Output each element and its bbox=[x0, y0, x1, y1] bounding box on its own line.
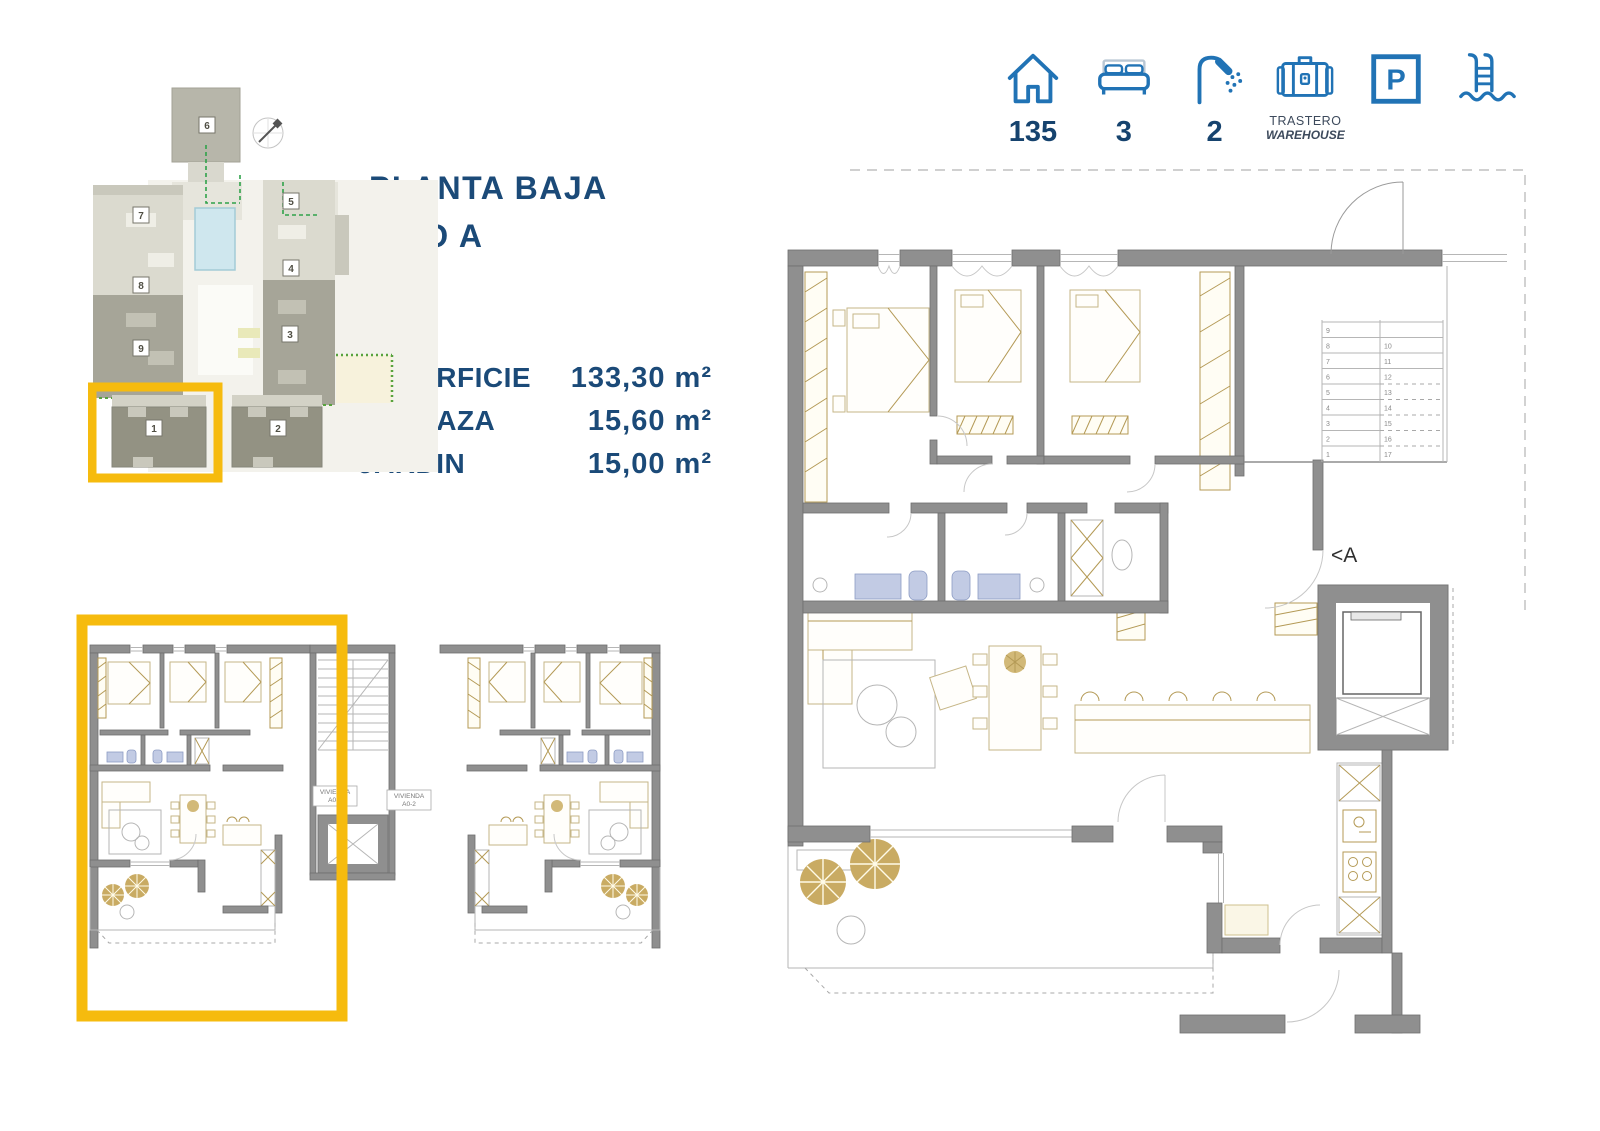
compass-icon bbox=[253, 118, 283, 148]
unit-label-6: 6 bbox=[204, 121, 210, 132]
brochure-page: PLANTA BAJA TIPO A SUPERFICIE 133,30 m² … bbox=[0, 0, 1600, 1131]
unit-label-2: 2 bbox=[275, 424, 281, 435]
laundry-room bbox=[1071, 520, 1132, 596]
stair-num: 13 bbox=[1384, 390, 1392, 397]
unit-label-1: 1 bbox=[151, 424, 157, 435]
unit-label-4: 4 bbox=[288, 264, 294, 275]
amenity-parking: P bbox=[1353, 48, 1439, 149]
spec-value: 15,60 m² bbox=[588, 405, 712, 438]
stair-num: 5 bbox=[1326, 390, 1330, 397]
entrance-label: <A bbox=[1331, 544, 1357, 567]
bedrooms-value: 3 bbox=[1116, 116, 1132, 149]
unit-label-5: 5 bbox=[288, 197, 294, 208]
amenity-bathrooms: 2 bbox=[1172, 48, 1258, 149]
amenity-bedrooms: 3 bbox=[1081, 48, 1167, 149]
site-pool bbox=[195, 208, 235, 270]
storage-caption: TRASTERO WAREHOUSE bbox=[1266, 114, 1345, 142]
unit-label-3: 3 bbox=[287, 330, 293, 341]
stair-num: 11 bbox=[1384, 359, 1391, 366]
stair-num: 4 bbox=[1326, 406, 1330, 413]
stair-num: 2 bbox=[1326, 437, 1330, 444]
storage-label-es: TRASTERO bbox=[1266, 114, 1345, 128]
bedroom-1 bbox=[805, 272, 929, 502]
site-plan: 6 7 8 9 5 4 3 1 2 bbox=[88, 85, 498, 485]
amenity-area: 135 bbox=[990, 48, 1076, 149]
parking-letter: P bbox=[1387, 65, 1406, 97]
small-floor-plan: VIVIENDA A0-1 VIVIENDA A0-2 bbox=[75, 610, 670, 1028]
warehouse-icon bbox=[1272, 48, 1338, 110]
area-value: 135 bbox=[1009, 116, 1057, 149]
parking-icon: P bbox=[1365, 48, 1427, 110]
stair-num: 17 bbox=[1384, 452, 1392, 459]
storage-label-en: WAREHOUSE bbox=[1266, 128, 1345, 142]
dining-area bbox=[973, 646, 1057, 750]
staircase: 9 8 7 6 5 4 3 2 1 10 11 12 13 14 15 16 1… bbox=[1322, 320, 1443, 462]
stair-num: 7 bbox=[1326, 359, 1330, 366]
stair-num: 10 bbox=[1384, 344, 1392, 351]
stair-num: 9 bbox=[1326, 328, 1330, 335]
stair-num: 12 bbox=[1384, 375, 1392, 382]
unit2-label-line2: A0-2 bbox=[402, 801, 416, 808]
unit-label-7: 7 bbox=[138, 211, 144, 222]
stair-num: 15 bbox=[1384, 421, 1392, 428]
unit-label-9: 9 bbox=[138, 344, 144, 355]
plot-boundary-dashed bbox=[850, 170, 1525, 615]
stair-num: 3 bbox=[1326, 421, 1330, 428]
stair-core: VIVIENDA A0-1 VIVIENDA A0-2 bbox=[310, 645, 431, 880]
kitchen-counter bbox=[1225, 763, 1382, 935]
amenity-pool bbox=[1444, 48, 1530, 149]
pool-icon bbox=[1456, 48, 1518, 110]
bathroom-1 bbox=[813, 571, 927, 600]
stair-num: 16 bbox=[1384, 437, 1392, 444]
shower-icon bbox=[1184, 48, 1246, 110]
stair-num: 14 bbox=[1384, 406, 1392, 413]
elevator-shaft bbox=[1318, 585, 1448, 750]
spec-value: 15,00 m² bbox=[588, 448, 712, 481]
stair-num: 1 bbox=[1326, 452, 1330, 459]
bedroom-2 bbox=[955, 290, 1021, 434]
amenity-storage: TRASTERO WAREHOUSE bbox=[1262, 48, 1348, 149]
bathroom-2 bbox=[952, 571, 1044, 600]
kitchen-island bbox=[1075, 603, 1317, 753]
spec-value: 133,30 m² bbox=[571, 362, 712, 395]
bed-icon bbox=[1091, 48, 1157, 110]
stair-num: 6 bbox=[1326, 375, 1330, 382]
bathrooms-value: 2 bbox=[1207, 116, 1223, 149]
unit2-label-line1: VIVIENDA bbox=[394, 793, 425, 800]
unit-label-8: 8 bbox=[138, 281, 144, 292]
terrace-parasols bbox=[102, 874, 149, 919]
stair-num: 8 bbox=[1326, 344, 1330, 351]
amenities-bar: 135 3 bbox=[990, 48, 1530, 149]
house-icon bbox=[1002, 48, 1064, 110]
apartment-unit-plan bbox=[90, 645, 310, 948]
large-floor-plan: 9 8 7 6 5 4 3 2 1 10 11 12 13 14 15 16 1… bbox=[775, 160, 1540, 1035]
terrace-garden bbox=[788, 839, 1213, 993]
apartment-unit-plan-mirrored bbox=[440, 645, 660, 948]
